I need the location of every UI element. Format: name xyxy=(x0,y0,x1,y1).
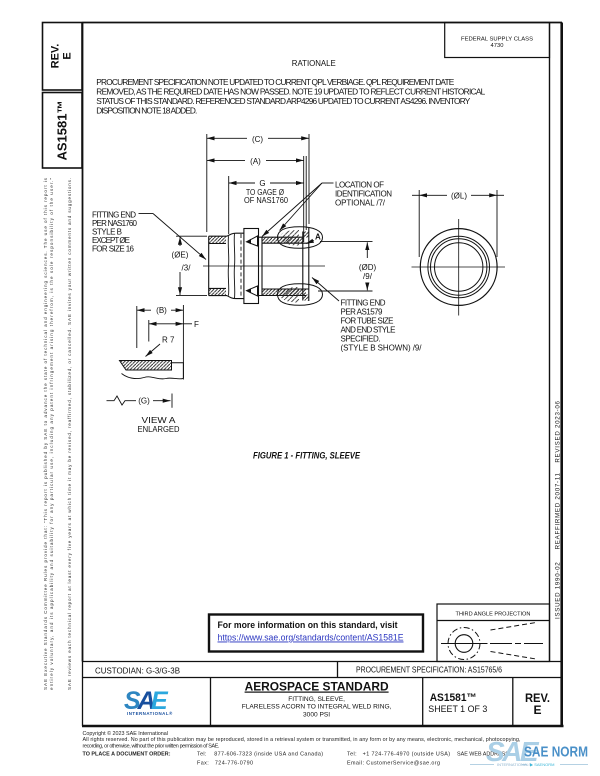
svg-text:SAE Executive Standards Commit: SAE Executive Standards Committee Rules … xyxy=(43,177,48,690)
svg-text:For more information on this s: For more information on this standard, v… xyxy=(218,620,399,631)
svg-text:FIGURE 1 - FITTING, SLEEVE: FIGURE 1 - FITTING, SLEEVE xyxy=(253,451,361,461)
svg-text:/9/: /9/ xyxy=(363,272,373,281)
svg-text:(G): (G) xyxy=(138,397,150,406)
svg-text:G: G xyxy=(259,179,265,188)
svg-text:REV.: REV. xyxy=(50,44,62,69)
svg-text:ISSUED 1990-02 REAFFIRMED: ISSUED 1990-02 REAFFIRMED 2007-11 REVISE… xyxy=(555,400,562,619)
svg-text:All rights reserved. No part o: All rights reserved. No part of this pub… xyxy=(83,737,522,743)
svg-text:A: A xyxy=(315,233,321,242)
svg-text:THIRD ANGLE PROJECTION: THIRD ANGLE PROJECTION xyxy=(456,612,531,618)
svg-text:VIEW A: VIEW A xyxy=(142,416,177,425)
svg-text:(ØD): (ØD) xyxy=(359,263,377,272)
svg-text:OPTIONAL /7/: OPTIONAL /7/ xyxy=(335,199,386,208)
svg-text:FLARELESS ACORN TO INTEGRAL WE: FLARELESS ACORN TO INTEGRAL WELD RING, xyxy=(242,704,392,711)
svg-text:F: F xyxy=(194,320,199,329)
svg-text:TO PLACE A DOCUMENT ORDER:: TO PLACE A DOCUMENT ORDER: xyxy=(83,751,171,757)
svg-text:AEROSPACE STANDARD: AEROSPACE STANDARD xyxy=(245,680,389,694)
svg-text:SPECIFIED.: SPECIFIED. xyxy=(341,334,381,343)
svg-text:AS1581™: AS1581™ xyxy=(430,692,477,704)
svg-text:Email: CustomerService@sae.org: Email: CustomerService@sae.org xyxy=(347,761,440,767)
svg-text:FITTING END: FITTING END xyxy=(341,298,386,307)
svg-text:E: E xyxy=(62,52,74,59)
svg-text:FOR SIZE 16: FOR SIZE 16 xyxy=(92,244,135,253)
svg-text:SHEET 1 OF 3: SHEET 1 OF 3 xyxy=(428,703,487,714)
svg-text:PER AS1579: PER AS1579 xyxy=(341,307,384,316)
svg-text:recording, or otherwise, witho: recording, or otherwise, without the pri… xyxy=(83,743,220,749)
svg-text:SAE NORM: SAE NORM xyxy=(524,745,588,761)
svg-text:FEDERAL SUPPLY CLASS: FEDERAL SUPPLY CLASS xyxy=(461,37,533,43)
svg-text:LOCATION OF: LOCATION OF xyxy=(335,181,384,190)
svg-text:https://www.sae.org/standards/: https://www.sae.org/standards/content/AS… xyxy=(218,633,404,643)
svg-text:(ØE): (ØE) xyxy=(172,251,189,260)
svg-text:/3/: /3/ xyxy=(182,263,192,272)
svg-text:▶ SAENORM: ▶ SAENORM xyxy=(530,762,554,767)
svg-text:E: E xyxy=(533,703,541,717)
svg-text:4730: 4730 xyxy=(491,43,504,49)
svg-text:(B): (B) xyxy=(156,306,167,315)
svg-text:AS1581™: AS1581™ xyxy=(55,101,70,161)
svg-text:(STYLE B SHOWN) /9/: (STYLE B SHOWN) /9/ xyxy=(341,343,423,352)
svg-text:FOR TUBE SIZE: FOR TUBE SIZE xyxy=(341,316,394,325)
svg-text:(C): (C) xyxy=(252,135,263,144)
svg-text:FITTING, SLEEVE,: FITTING, SLEEVE, xyxy=(288,696,345,703)
svg-text:OF NAS1760: OF NAS1760 xyxy=(244,196,289,205)
svg-text:entirely voluntary, and its ap: entirely voluntary, and its applicabilit… xyxy=(49,178,54,690)
svg-text:(ØL): (ØL) xyxy=(451,192,467,201)
svg-text:DISPOSITION NOTE 18 ADDED.: DISPOSITION NOTE 18 ADDED. xyxy=(96,105,197,115)
svg-text:3000 PSI: 3000 PSI xyxy=(303,711,330,718)
svg-text:PROCUREMENT SPECIFICATION: AS1: PROCUREMENT SPECIFICATION: AS15765/6 xyxy=(356,666,502,675)
svg-text:SAE reviews each technical rep: SAE reviews each technical report at lea… xyxy=(67,178,72,690)
svg-text:AND END STYLE: AND END STYLE xyxy=(341,325,396,334)
svg-text:Copyright © 2023 SAE Internati: Copyright © 2023 SAE International xyxy=(83,730,168,737)
svg-text:(A): (A) xyxy=(250,157,261,166)
svg-text:CUSTODIAN: G-3/G-3B: CUSTODIAN: G-3/G-3B xyxy=(95,667,180,676)
svg-text:Fax: 724-776-0790: Fax: 724-776-0790 xyxy=(197,761,253,767)
svg-text:RATIONALE: RATIONALE xyxy=(292,58,336,68)
svg-text:Tel: +1 724-776-4970 (outsid: Tel: +1 724-776-4970 (outside USA) xyxy=(347,751,450,757)
svg-text:R 7: R 7 xyxy=(162,336,175,345)
svg-text:ENLARGED: ENLARGED xyxy=(138,425,180,434)
svg-text:Tel: 877-606-7323 (inside U: Tel: 877-606-7323 (inside USA and Canada… xyxy=(197,751,323,757)
svg-text:INTERNATIONAL®: INTERNATIONAL® xyxy=(127,711,173,716)
svg-text:IDENTIFICATION: IDENTIFICATION xyxy=(335,190,392,199)
